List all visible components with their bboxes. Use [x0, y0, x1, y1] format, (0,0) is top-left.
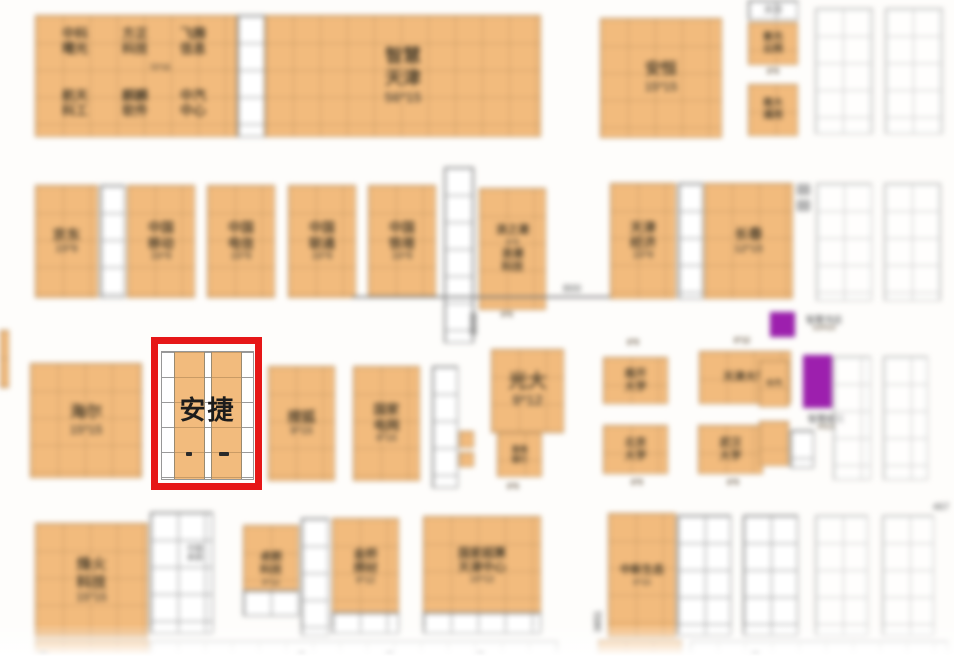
booth-label: 大学: [625, 450, 647, 463]
booth-tianjin-jingji: 天津经济15*9: [610, 183, 676, 299]
booth-label: 大学: [625, 381, 647, 394]
booth-empty-b4: [815, 515, 868, 636]
booth-empty-b1: [150, 512, 213, 634]
booth-label: 6*9: [627, 338, 639, 347]
booth-empty-b5: [882, 515, 934, 636]
booth-empty-b3: [743, 515, 798, 636]
booth-empty-top-2: [885, 8, 943, 134]
booth-label-6x9-top: 6*9: [756, 64, 790, 80]
booth-anheng: 安恒15*15: [600, 18, 722, 138]
booth-small-white: [790, 430, 814, 468]
booth-tick-5: [752, 652, 759, 661]
booth-label: 15*12: [470, 574, 494, 585]
booth-label: 9*12: [512, 393, 542, 410]
booth-label: 天津: [630, 220, 656, 235]
booth-fade-orange-1: [35, 640, 149, 664]
booth-label: 中国: [187, 544, 203, 553]
booth-tick-4: [477, 652, 484, 661]
booth-label-6x12: 6*12: [724, 334, 760, 347]
booth-label: 15*15: [76, 591, 107, 605]
booth-guojia-dianwang: 国家电网9*15: [353, 366, 420, 481]
booth-label-6x6-a: 6*6: [492, 308, 522, 322]
booth-label: 中科: [62, 26, 88, 41]
booth-label: 国家: [373, 402, 399, 417]
booth-empty-col-4: [301, 518, 329, 636]
booth-label: 3651: [593, 611, 605, 633]
booth-wuhan-daxue: 武汉大学: [698, 425, 763, 474]
highlighted-booth-label: 安捷: [162, 390, 253, 427]
booth-label: 智慧: [385, 46, 421, 67]
booth-empty-top-1: [815, 8, 873, 134]
booth-label: 中新生态: [620, 564, 664, 577]
booth-label: 曙光: [62, 41, 88, 56]
booth-label: 麒麟: [122, 88, 148, 103]
booth-label: 系统: [187, 553, 203, 562]
booth-guangda-sub: 渤海银行: [497, 432, 542, 477]
booth-label: 中汽: [766, 379, 782, 388]
booth-label: 国家超算: [458, 546, 506, 560]
booth-fade-orange-2: [598, 640, 682, 664]
booth-label: 云网: [763, 44, 783, 56]
booth-label: 天津: [385, 68, 421, 89]
booth-langchao: 浪之潮6*9浪潮科技: [479, 188, 546, 310]
booth-label: 信息: [180, 41, 206, 56]
booth-label: 9*12: [356, 575, 375, 586]
booth-china-telecom: 中国电信15*9: [207, 185, 275, 298]
booth-label: 电信: [228, 236, 254, 251]
booth-zhongke-shuguang: 中科曙光: [52, 20, 98, 62]
booth-jinqiao-hancai: 金桥焊材9*12: [332, 518, 399, 615]
booth-fade-white-1: [150, 641, 558, 664]
booth-jingdong: 京东15*9: [35, 185, 98, 298]
booth-dim-line-800: [352, 296, 628, 298]
booth-label: 6*9: [727, 478, 739, 487]
booth-guangda: 光大9*12: [491, 349, 564, 433]
booth-ziguang-yunwang: 紫光云网: [748, 22, 798, 65]
booth-label: 6*6: [507, 482, 519, 491]
booth-label-6x9-b: 6*9: [622, 476, 652, 489]
booth-label: 科工: [62, 103, 88, 118]
booth-label: 15*9: [392, 251, 413, 263]
booth-label: 南开: [625, 368, 647, 381]
booth-label: 电网: [373, 418, 399, 433]
booth-zhongqi-zhongxin: 中汽中心: [168, 82, 218, 124]
booth-label: 紫光: [763, 32, 783, 44]
booth-dim-8000: 8000: [468, 300, 482, 348]
booth-purple-post: [803, 355, 832, 408]
booth-label: 烽火: [76, 556, 106, 574]
booth-east-sub: [759, 421, 789, 466]
booth-qilin-ruanjian: 麒麟软件: [112, 82, 158, 124]
booth-label: 搜狐: [288, 409, 316, 426]
booth-label: 中汽: [180, 88, 206, 103]
booth-label: 软件: [122, 103, 148, 118]
booth-dim-800: 800: [556, 283, 588, 295]
booth-label: 15*9: [151, 251, 172, 263]
booth-zhongguo-xitong: 中国系统: [174, 539, 216, 567]
booth-tiny-gray-2: [797, 200, 810, 211]
booth-fenghuo-keji: 烽火科技15*15: [35, 523, 148, 638]
booth-empty-b2: [677, 515, 731, 636]
booth-china-tower: 中国铁塔15*9: [368, 185, 436, 298]
booth-label: 智慧书店: [806, 315, 842, 326]
booth-guojia-chaosuan: 国家超算天津中心15*12: [423, 516, 541, 615]
booth-label: 光大: [508, 371, 546, 393]
booth-label: 15*15: [645, 80, 678, 95]
booth-label: 大学: [720, 450, 742, 463]
booth-label: 浪潮: [502, 248, 524, 261]
booth-zhuolang-sub: [243, 590, 299, 616]
booth-fade-white-2: [690, 641, 948, 664]
booth-label: 航天: [62, 88, 88, 103]
booth-tick-3: [386, 652, 393, 661]
booth-empty-r3-2: [883, 356, 928, 480]
booth-zhongxin-shengtai: 中新生态9*15: [608, 513, 676, 638]
booth-empty-mid-1: [816, 183, 872, 301]
booth-label: 15*9: [312, 251, 333, 263]
booth-label: 中国: [309, 220, 335, 235]
booth-label-6x9-a: 6*9: [618, 336, 648, 349]
booth-nankai-daxue: 南开大学: [603, 357, 668, 404]
booth-label: 15*9: [231, 251, 252, 263]
booth-label: 467: [933, 502, 950, 514]
booth-souhu: 搜狐9*15: [268, 366, 335, 481]
booth-label: 科技: [122, 41, 148, 56]
booth-label: 南大: [763, 98, 783, 110]
booth-label: 武汉: [720, 437, 742, 450]
booth-label: 天河: [764, 5, 782, 16]
booth-label: 9*15: [633, 577, 651, 587]
booth-label: 卓朗: [260, 551, 282, 564]
booth-label: 8000: [469, 313, 481, 335]
booth-label: 焊材: [353, 561, 377, 575]
booth-label: 12*15: [734, 243, 763, 256]
booth-nanda-tongyong: 南大通用: [748, 84, 798, 136]
booth-china-unicom: 中国联通15*9: [288, 185, 356, 298]
booth-tick-2: [298, 652, 305, 661]
booth-label: 天津中心: [458, 560, 506, 574]
booth-small-booth-1: [459, 431, 474, 448]
booth-label: 铁塔: [389, 236, 415, 251]
booth-label: 6*9: [631, 478, 643, 487]
highlighted-booth-anjie: 安捷: [161, 351, 254, 480]
booth-band-topleft: 72*15: [100, 60, 220, 76]
booth-label: 科技: [502, 261, 524, 274]
booth-label: 经济: [630, 235, 656, 250]
booth-label: 6*6: [501, 310, 513, 319]
booth-label: 6*9: [767, 67, 779, 76]
booth-label: 京东: [53, 227, 81, 244]
booth-label: 800: [563, 283, 581, 296]
booth-purple-bookstore: [770, 312, 795, 337]
booth-ladder-2: [432, 366, 458, 488]
booth-empty-col-3: [678, 183, 703, 299]
booth-label: 15*15: [70, 423, 103, 438]
booth-edge-sliver: [0, 330, 9, 388]
booth-empty-r3-1: [833, 356, 871, 480]
booth-label: 通用: [763, 110, 783, 122]
booth-label: 中心: [180, 103, 206, 118]
booth-label: 科技: [76, 574, 106, 592]
booth-label: 15*9: [55, 243, 77, 256]
booth-label: 6*9: [506, 237, 519, 247]
booth-dim-467: 467: [928, 501, 954, 514]
booth-zhihui-tianjin: 智慧天津56*15: [265, 15, 541, 137]
booth-tick-1: [40, 652, 47, 661]
booth-fangzheng-keji: 方正科技: [112, 20, 158, 62]
booth-label: 联通: [309, 236, 335, 251]
booth-changchun: 长春12*15: [704, 183, 793, 299]
booth-zhongqi-east: 中汽: [759, 360, 789, 407]
booth-label: 移动: [148, 236, 174, 251]
booth-label: 海尔: [70, 404, 102, 423]
booth-label: 中国: [228, 220, 254, 235]
floor-plan: 72*15中科曙光方正科技飞腾信息航天科工麒麟软件中汽中心智慧天津56*15安恒…: [0, 0, 954, 664]
booth-label: 72*15: [150, 63, 170, 72]
booth-label: 6*12: [734, 336, 750, 345]
booth-hangtian-kegong: 航天科工: [52, 82, 98, 124]
booth-mark: [186, 452, 192, 456]
booth-label: 北京: [625, 437, 647, 450]
booth-tianhe: 天河: [748, 0, 798, 20]
booth-label: 9*15: [290, 425, 312, 438]
booth-label: 飞腾: [180, 26, 206, 41]
booth-label: 长春: [735, 226, 763, 243]
booth-label-6x9-c: 6*9: [718, 476, 748, 489]
booth-label: 4*2.5: [818, 424, 834, 432]
booth-label: 渤海: [512, 445, 528, 454]
booth-label: 科技: [260, 564, 282, 577]
booth-bookstore-label: 智慧书店3.5*3.5: [797, 310, 851, 338]
booth-label: 浪之潮: [496, 224, 529, 237]
booth-china-mobile: 中国移动15*9: [127, 185, 195, 298]
blurred-map-layer: 72*15中科曙光方正科技飞腾信息航天科工麒麟软件中汽中心智慧天津56*15安恒…: [0, 0, 954, 664]
booth-label: 9*15: [376, 433, 397, 445]
booth-empty-mid-2: [884, 183, 941, 301]
booth-label: 银行: [512, 455, 528, 464]
booth-small-booth-2: [459, 452, 474, 467]
booth-empty-col-1: [237, 15, 265, 137]
booth-label: 3.5*3.5: [813, 325, 835, 333]
booth-feiteng-xinxi: 飞腾信息: [168, 20, 218, 62]
booth-label: 56*15: [385, 89, 422, 106]
booth-label: 中国: [148, 220, 174, 235]
booth-label: 方正: [122, 26, 148, 41]
booth-mark: [219, 452, 229, 456]
booth-jinqiao-sub: [332, 612, 399, 634]
booth-chaosuan-sub: [423, 612, 541, 634]
booth-tiny-gray-1: [797, 184, 810, 195]
booth-label: 安恒: [645, 61, 677, 80]
booth-label: 金桥: [353, 547, 377, 561]
booth-beijing-daxue: 北京大学: [603, 425, 668, 474]
booth-label-6x6-b: 6*6: [498, 480, 528, 493]
booth-label: 9*12: [262, 577, 280, 587]
booth-haier: 海尔15*15: [30, 363, 142, 478]
booth-label: 中国: [389, 220, 415, 235]
booth-label: 15*9: [633, 250, 654, 262]
booth-empty-col-2: [100, 185, 125, 298]
